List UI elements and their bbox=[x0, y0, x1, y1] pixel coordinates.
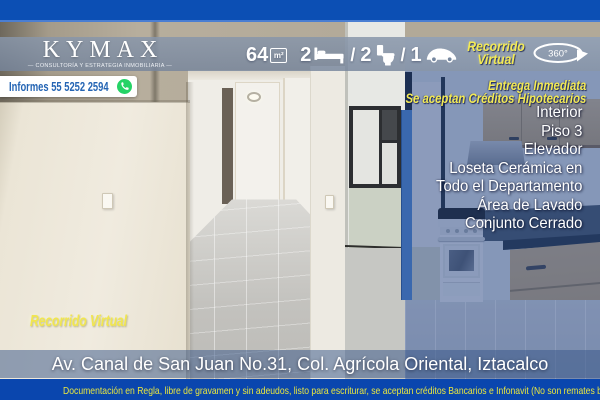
bedrooms-value: 2 bbox=[300, 44, 311, 67]
property-stats: 64 m² 2 / 2 / 1 bbox=[246, 40, 457, 70]
address-band: Av. Canal de San Juan No.31, Col. Agríco… bbox=[0, 350, 600, 378]
wall-corner-shadow bbox=[186, 82, 194, 379]
window bbox=[349, 106, 401, 188]
wall-ceiling-junction bbox=[0, 100, 190, 103]
three-sixty-icon[interactable]: 360° bbox=[532, 40, 590, 66]
toilet-icon bbox=[376, 45, 395, 66]
feature-item: Elevador bbox=[436, 141, 582, 160]
property-address: Av. Canal de San Juan No.31, Col. Agríco… bbox=[52, 350, 549, 378]
feature-item: Interior bbox=[436, 104, 582, 123]
near-wall bbox=[0, 102, 190, 379]
bathrooms-value: 2 bbox=[360, 44, 371, 67]
virtual-tour-badge[interactable]: Recorrido Virtual 360° bbox=[463, 40, 590, 66]
light-switch bbox=[102, 193, 113, 209]
feature-item: Área de Lavado bbox=[436, 197, 582, 216]
contact-box[interactable]: Informes 55 5252 2594 bbox=[0, 76, 137, 97]
feature-item: Piso 3 bbox=[436, 123, 582, 142]
area-unit: m² bbox=[274, 51, 284, 60]
feature-item: Todo el Departamento bbox=[436, 178, 582, 197]
window-pane bbox=[382, 110, 397, 140]
separator: / bbox=[401, 45, 406, 66]
window-pane bbox=[382, 143, 397, 184]
blue-door-frame bbox=[401, 110, 412, 300]
virtual-tour-bottom-label[interactable]: Recorrido Virtual bbox=[30, 313, 127, 331]
brand-name: KYMAX bbox=[26, 37, 174, 63]
footer-bar: Documentación en Regla, libre de gravame… bbox=[0, 379, 600, 400]
open-door-gap bbox=[222, 88, 233, 204]
lower-wall bbox=[349, 188, 401, 248]
brand-logo: KYMAX — CONSULTORÍA Y ESTRATEGIA INMOBIL… bbox=[26, 37, 174, 69]
car-icon bbox=[426, 47, 457, 63]
bed-icon bbox=[314, 47, 344, 64]
window-pane bbox=[353, 110, 379, 184]
parking-value: 1 bbox=[411, 44, 422, 67]
listing-flyer: KYMAX — CONSULTORÍA Y ESTRATEGIA INMOBIL… bbox=[0, 0, 600, 400]
legal-note: Documentación en Regla, libre de gravame… bbox=[63, 381, 600, 400]
svg-text:360°: 360° bbox=[548, 49, 568, 60]
contact-phone[interactable]: Informes 55 5252 2594 bbox=[9, 80, 109, 94]
highlight-lines: Entrega Inmediata Se aceptan Créditos Hi… bbox=[371, 79, 586, 105]
whatsapp-icon[interactable] bbox=[117, 79, 132, 94]
separator: / bbox=[350, 45, 355, 66]
area-unit-icon: m² bbox=[270, 48, 287, 63]
top-bar bbox=[0, 0, 600, 22]
recessed-light bbox=[247, 92, 261, 102]
area-value: 64 bbox=[246, 44, 268, 67]
feature-item: Conjunto Cerrado bbox=[436, 215, 582, 234]
feature-list: Interior Piso 3 Elevador Loseta Cerámica… bbox=[436, 104, 582, 234]
virtual-tour-label: Recorrido Virtual bbox=[467, 40, 525, 66]
light-switch bbox=[325, 195, 334, 209]
feature-item: Loseta Cerámica en bbox=[436, 160, 582, 179]
ceiling bbox=[405, 22, 600, 37]
brand-tagline: — CONSULTORÍA Y ESTRATEGIA INMOBILIARIA … bbox=[26, 63, 174, 69]
right-wall bbox=[310, 66, 345, 379]
laundry-section bbox=[345, 22, 405, 379]
